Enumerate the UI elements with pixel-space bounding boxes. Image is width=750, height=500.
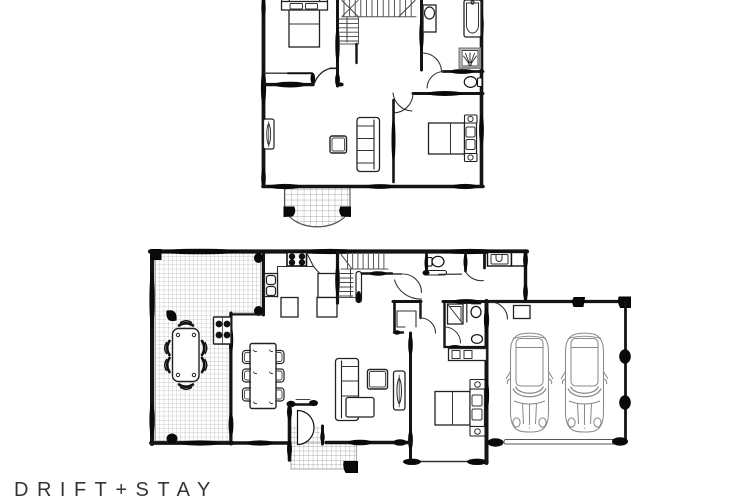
svg-text:DRIFT+STAY: DRIFT+STAY: [14, 479, 219, 500]
